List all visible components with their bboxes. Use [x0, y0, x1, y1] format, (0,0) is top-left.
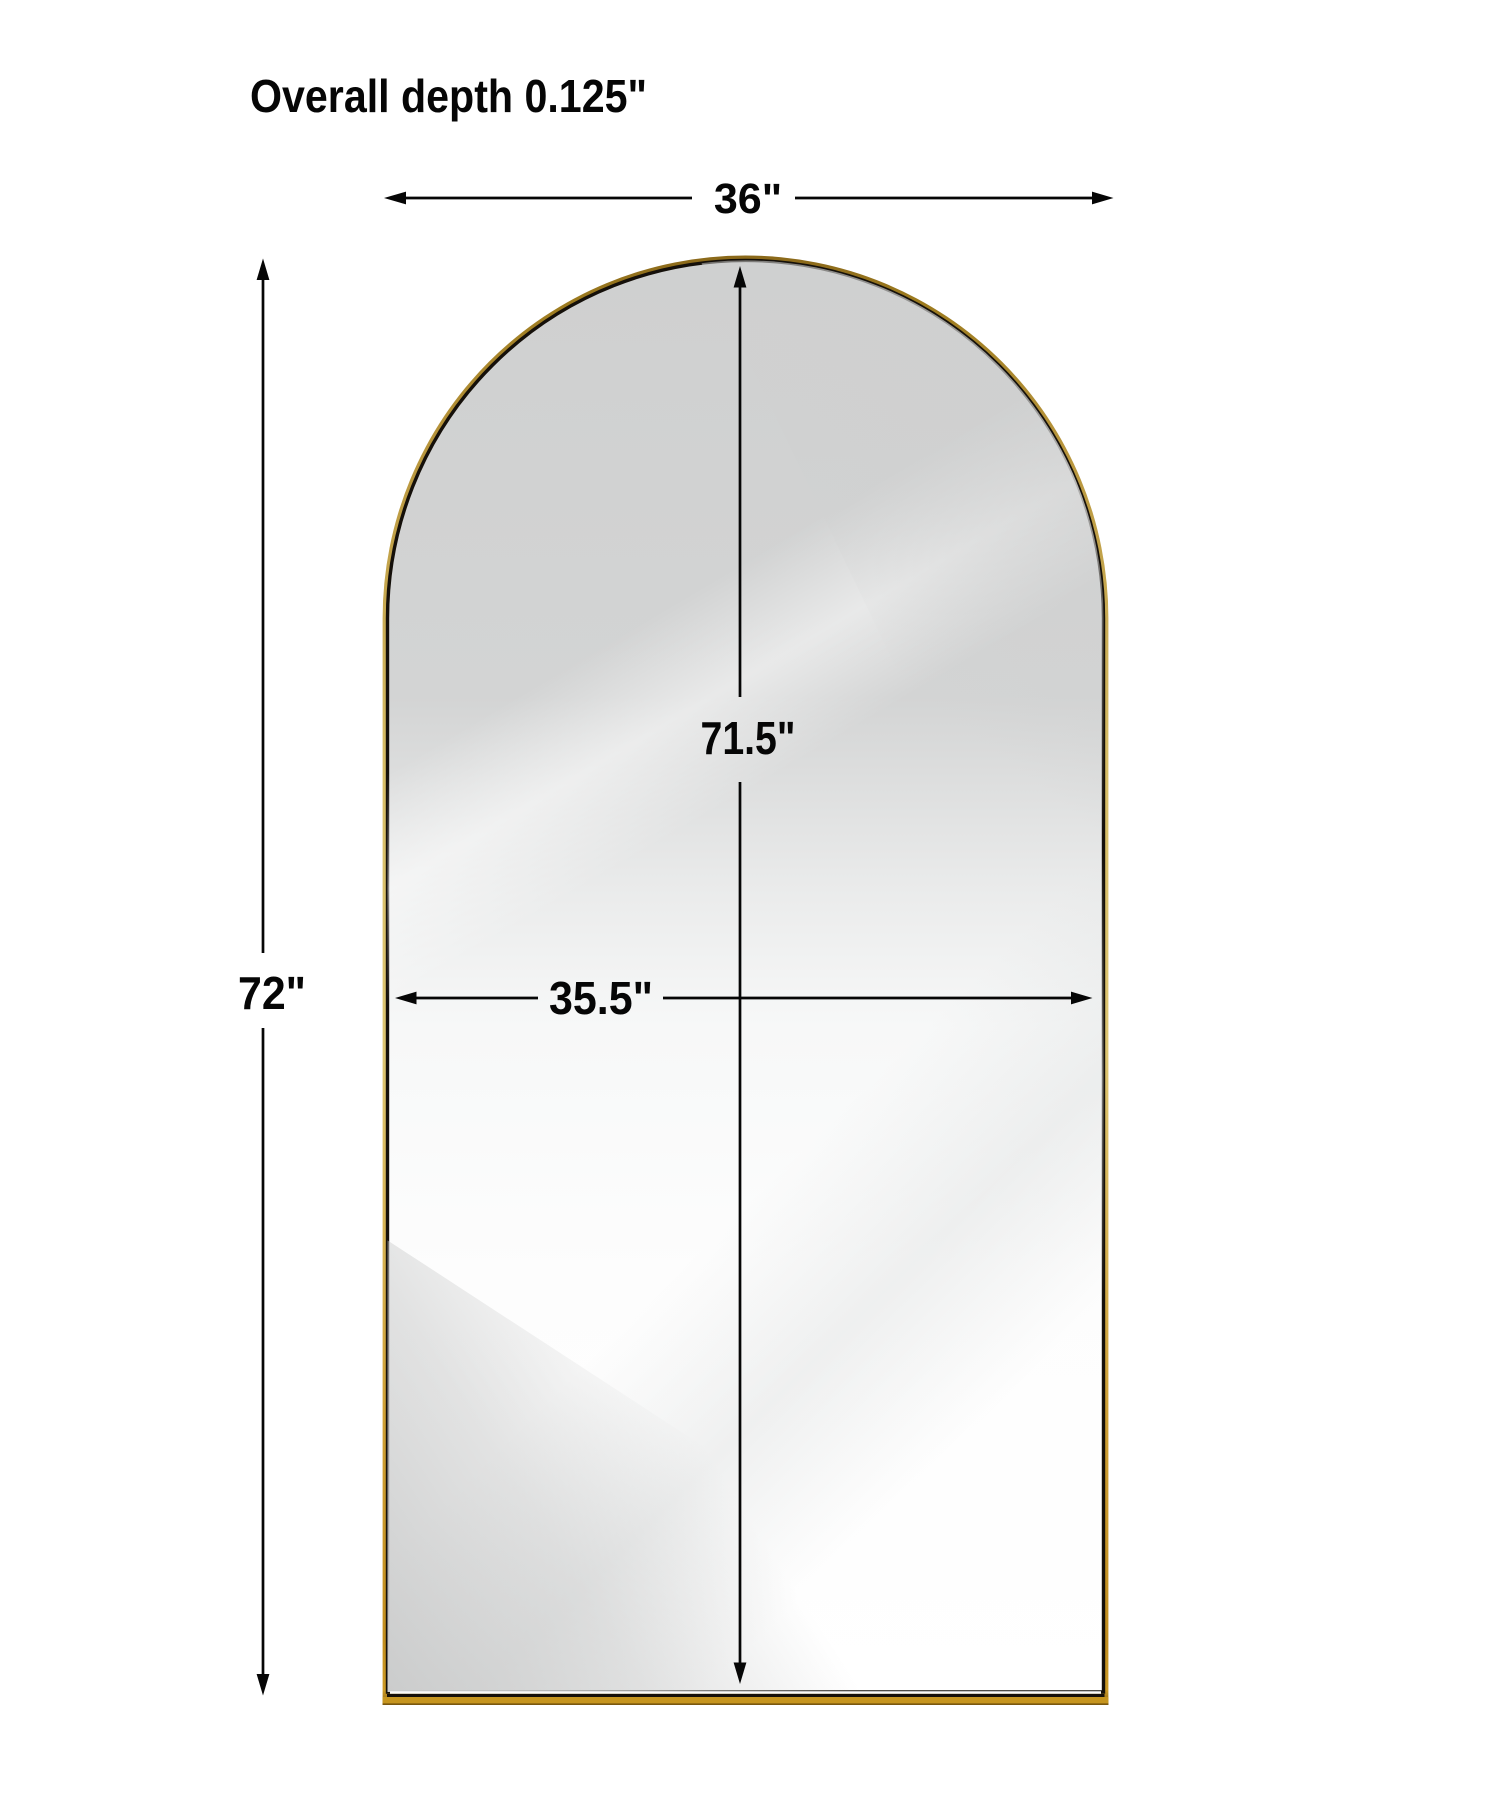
svg-text:36": 36" — [714, 175, 782, 223]
svg-text:72": 72" — [238, 967, 306, 1019]
svg-text:35.5": 35.5" — [549, 972, 653, 1024]
svg-text:Overall depth 0.125": Overall depth 0.125" — [250, 70, 647, 122]
svg-text:71.5": 71.5" — [701, 712, 796, 764]
